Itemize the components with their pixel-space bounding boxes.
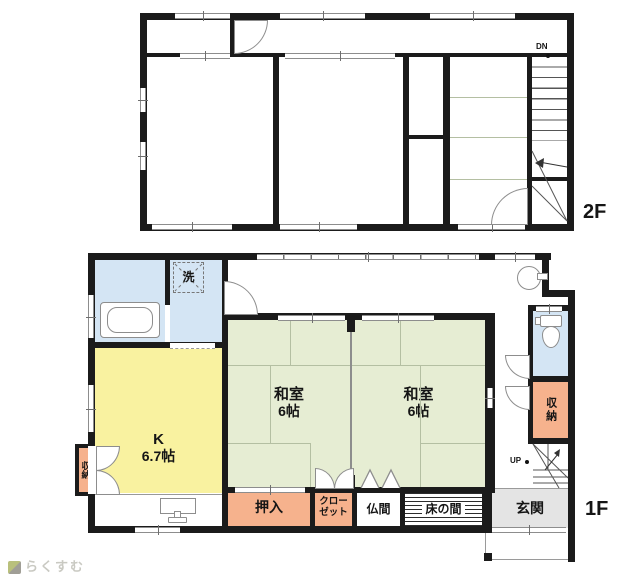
- stairs-up-dot: [525, 460, 529, 464]
- vanity-base-icon: [168, 517, 187, 523]
- floor1-label: 1F: [585, 498, 608, 520]
- japanese-room-2-name: 和室: [403, 387, 433, 404]
- genkan-label: 玄関: [516, 501, 544, 517]
- kitchen: K 6.7帖: [95, 348, 222, 493]
- oshiire-1f: 押入: [228, 490, 310, 526]
- storage-right-door: [505, 386, 530, 410]
- logo-house-icon: [8, 561, 21, 574]
- closet-1f: クローゼット: [315, 490, 352, 526]
- kitchen-size: 6.7帖: [142, 449, 175, 465]
- logo-text: らくすむ: [25, 560, 85, 575]
- stairs-up-label: UP: [510, 457, 521, 466]
- staircase-2f-winder: [532, 141, 567, 224]
- storage-right-label: 収納: [544, 397, 556, 423]
- tokonoma: 床の間: [405, 493, 482, 526]
- entrance-porch: [485, 533, 569, 560]
- closet-1f-label: クローゼット: [315, 497, 352, 518]
- bathtub-inner: [107, 307, 153, 333]
- butsuma-folding-door: [357, 468, 403, 488]
- japanese-room-1-name: 和室: [274, 387, 304, 404]
- toilet-button-icon: [535, 317, 541, 325]
- logo: らくすむ: [8, 560, 85, 575]
- japanese-room-2-size: 6帖: [408, 404, 430, 420]
- stairs-down-label: DN: [536, 43, 548, 52]
- entrance-door: [492, 527, 566, 533]
- rear-corridor: [95, 494, 222, 527]
- japanese-room-1-size: 6帖: [278, 404, 300, 420]
- hallway-door-1f: [224, 281, 258, 315]
- butsuma-label: 仏間: [366, 503, 390, 516]
- floor2-label: 2F: [583, 201, 606, 223]
- japanese-room-1: 和室 6帖: [228, 320, 350, 487]
- basin-tap-icon: [537, 273, 548, 280]
- tokonoma-label: 床の間: [422, 503, 464, 516]
- oshiire-1f-label: 押入: [255, 500, 283, 516]
- washing-machine-label: 洗: [182, 271, 194, 284]
- staircase-1f: [533, 444, 568, 488]
- washing-machine-icon: 洗: [173, 262, 204, 293]
- storage-right: 収納: [533, 382, 568, 438]
- butsuma: 仏間: [357, 493, 400, 526]
- toilet-door: [505, 355, 530, 379]
- staircase-2f: [532, 57, 567, 141]
- floor-plan-page: { "colors": { "wall": "#1b1b1b", "wester…: [0, 0, 640, 582]
- genkan: 玄関: [492, 488, 568, 528]
- japanese-room-2: 和室 6帖: [352, 320, 485, 487]
- kitchen-name: K: [153, 432, 164, 449]
- stairs-down-dot: [546, 54, 550, 58]
